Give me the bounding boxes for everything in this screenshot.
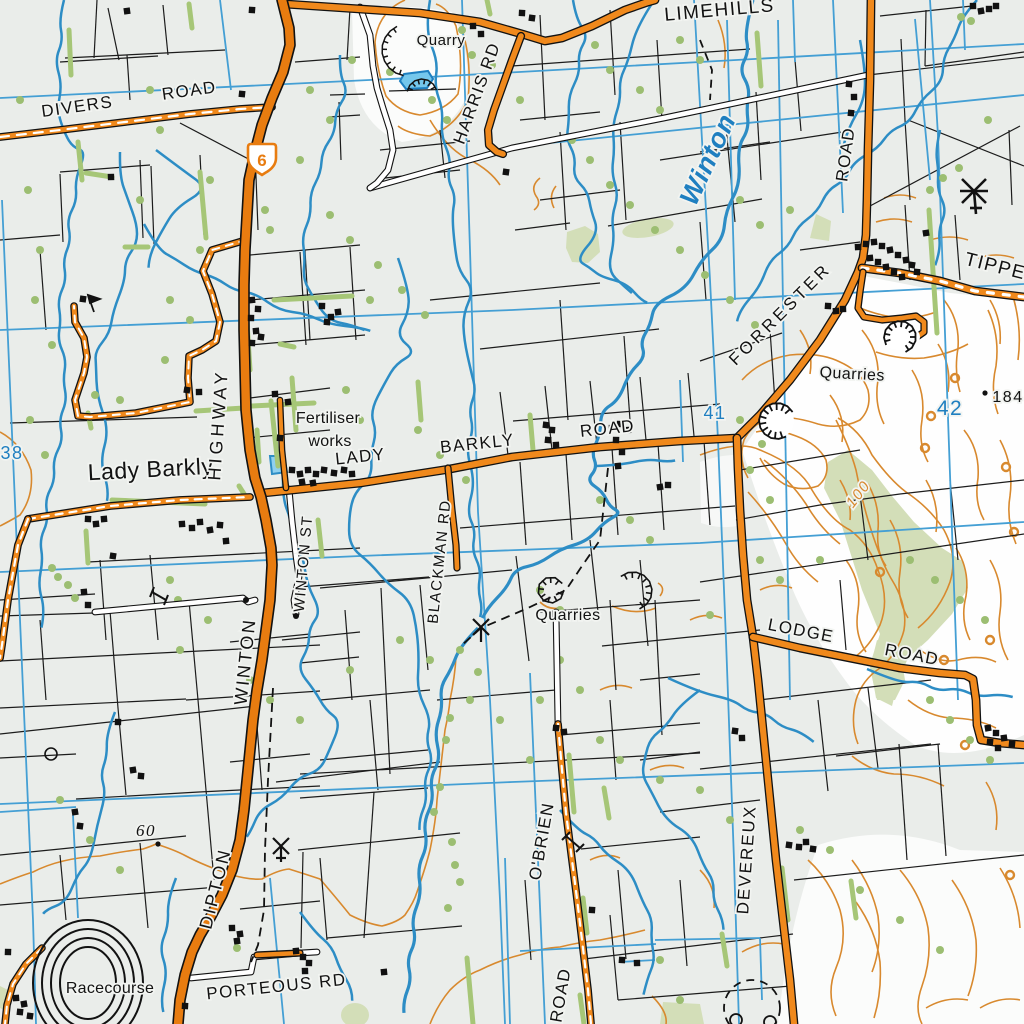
svg-text:Quarries: Quarries [535,607,600,624]
svg-text:Racecourse: Racecourse [66,980,154,997]
svg-text:Fertiliser: Fertiliser [296,410,361,427]
svg-text:works: works [307,433,351,450]
svg-text:6: 6 [257,151,266,170]
svg-text:184: 184 [992,389,1023,406]
svg-text:41: 41 [703,403,726,423]
svg-text:Quarry: Quarry [417,32,466,49]
svg-text:38: 38 [0,443,23,463]
svg-text:Quarries: Quarries [819,364,885,384]
svg-text:42: 42 [937,397,963,420]
svg-text:60: 60 [136,821,156,840]
